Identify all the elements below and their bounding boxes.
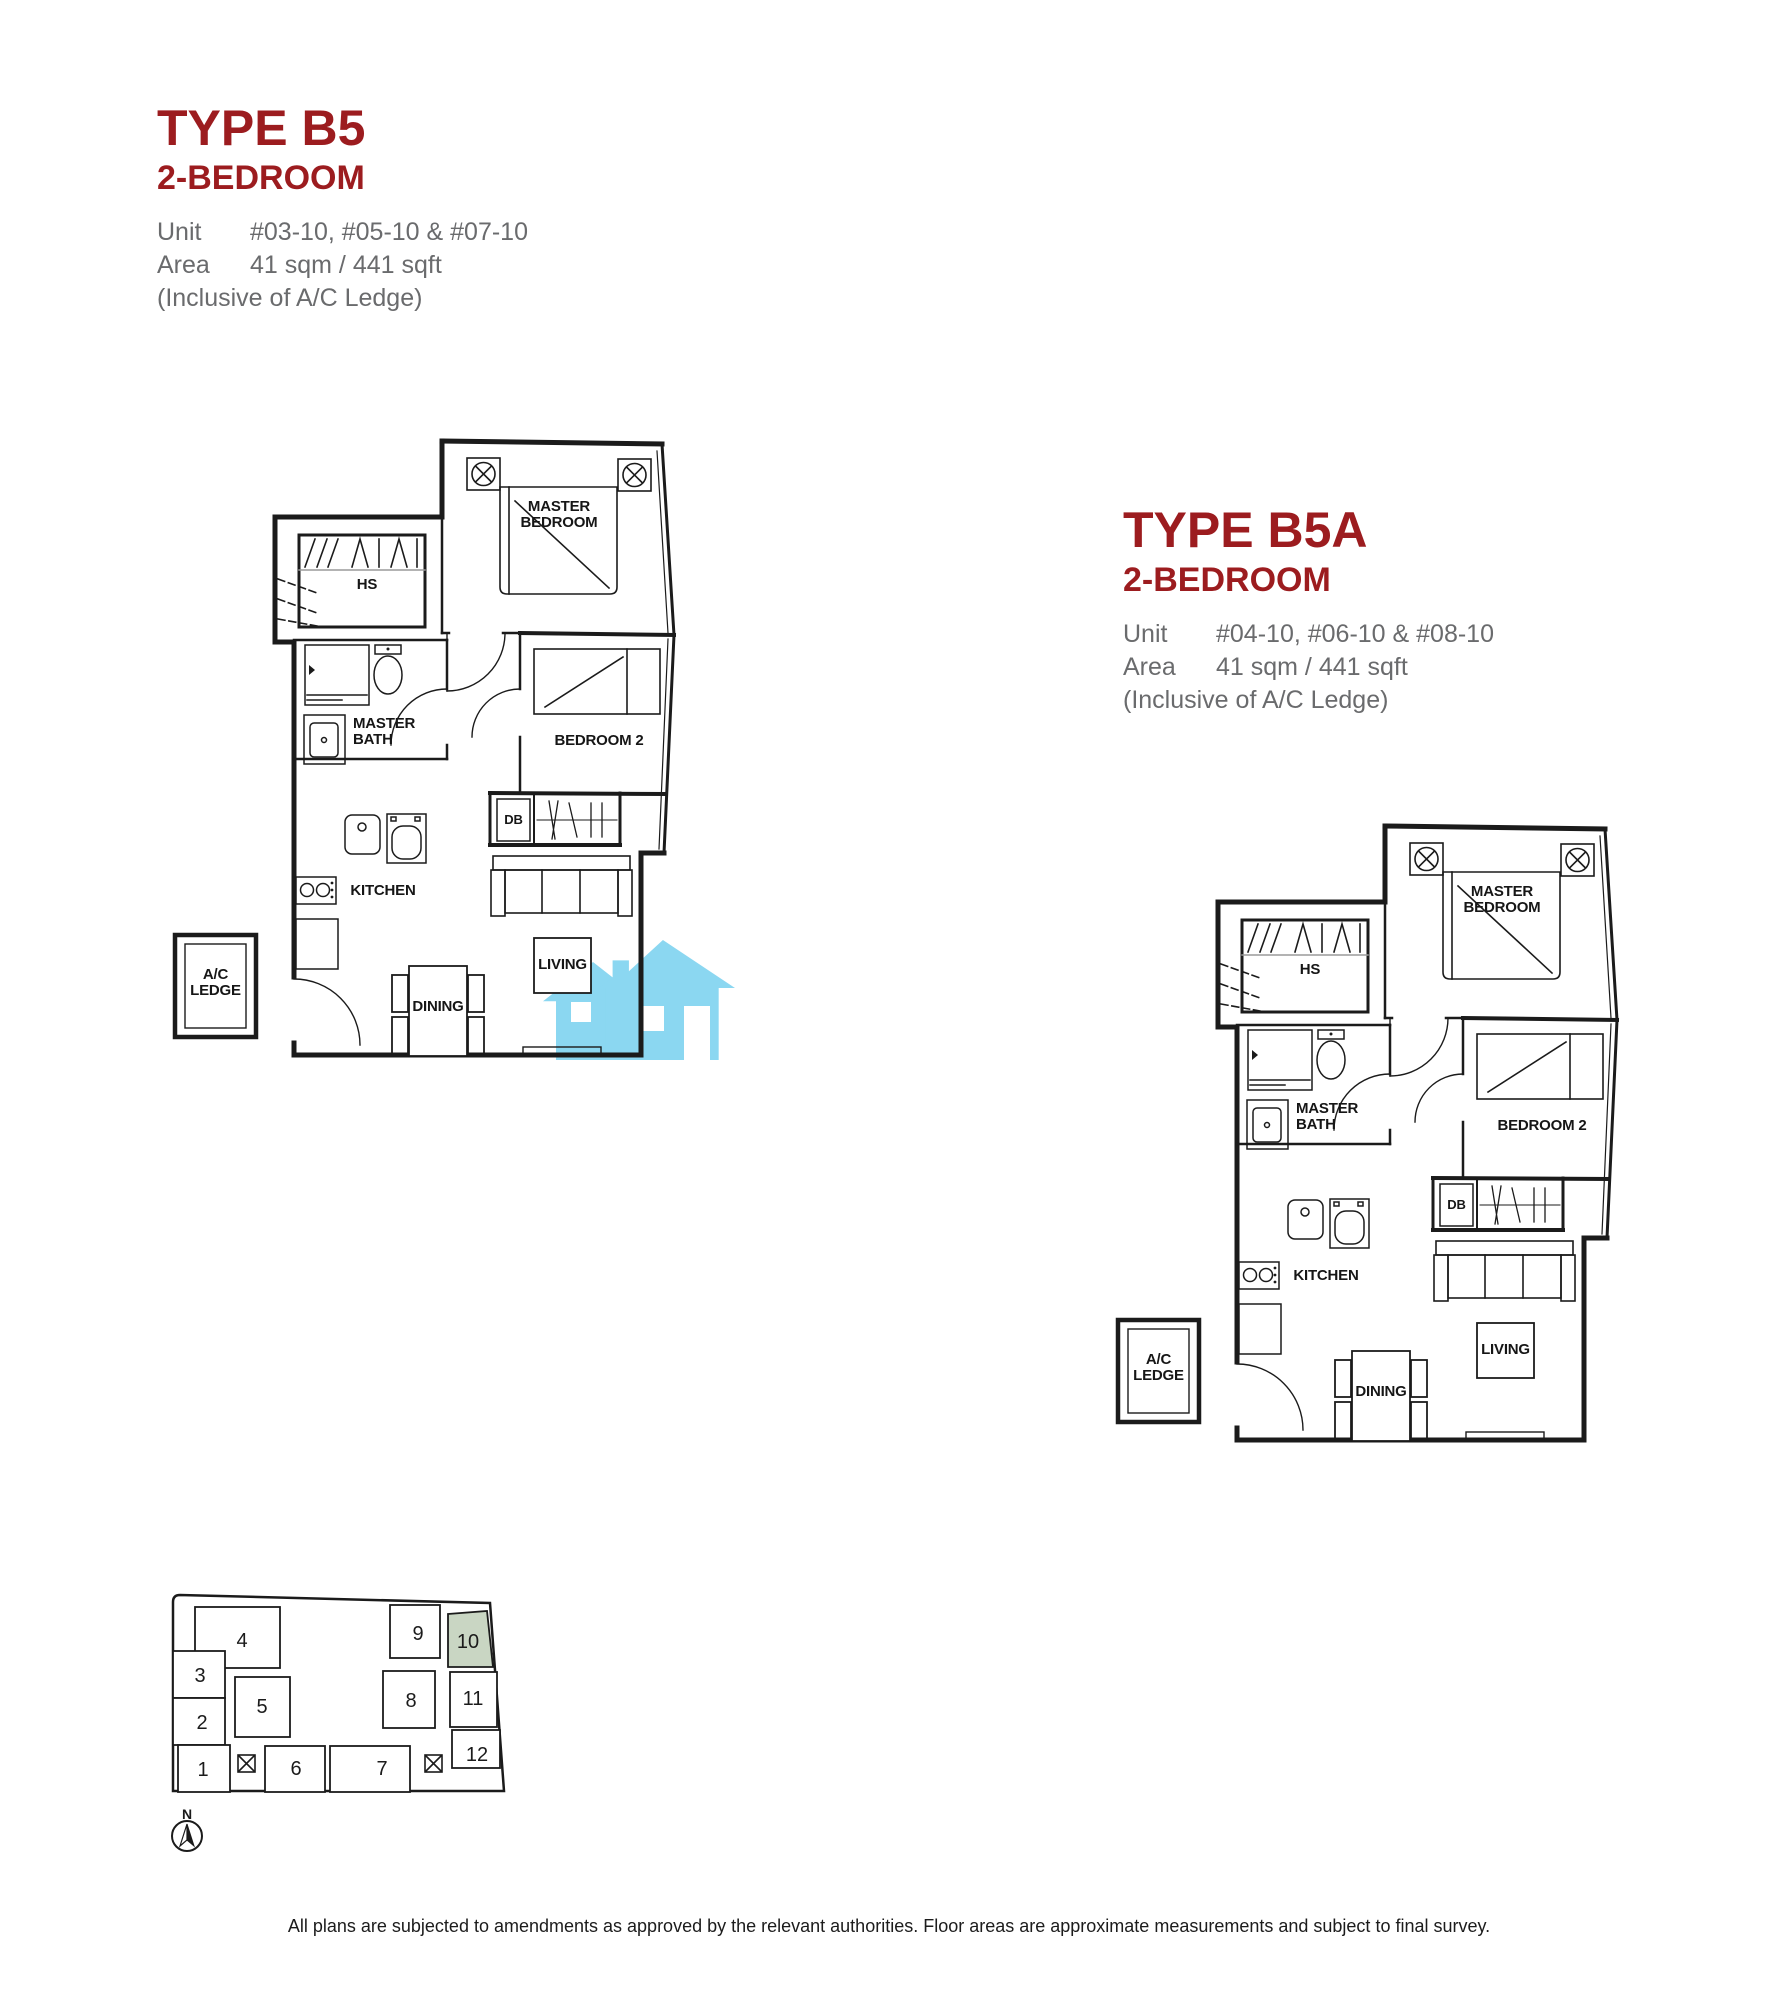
label-master-bath: MASTER BATH [353,716,433,748]
label-dining: DINING [1351,1384,1411,1400]
site-unit-7 [330,1746,410,1792]
label-hs: HS [342,577,392,593]
unit-number-7: 7 [376,1758,387,1780]
unit-number-9: 9 [412,1623,423,1645]
lift-icon [238,1755,255,1772]
area-row: Area 41 sqm / 441 sqft [1123,651,1494,684]
type-b5-title: TYPE B5 [157,103,528,154]
unit-label: Unit [1123,618,1216,651]
unit-row: Unit #03-10, #05-10 & #07-10 [157,216,528,249]
unit-number-4: 4 [236,1630,247,1652]
lift-icon [425,1755,442,1772]
unit-label: Unit [157,216,250,249]
unit-value: #03-10, #05-10 & #07-10 [250,216,528,249]
ac-ledge-note: (Inclusive of A/C Ledge) [1123,684,1494,717]
label-living: LIVING [534,957,591,973]
label-bedroom2: BEDROOM 2 [1482,1118,1602,1134]
type-b5a-info: Unit #04-10, #06-10 & #08-10 Area 41 sqm… [1123,618,1494,717]
label-master-bedroom: MASTER BEDROOM [497,499,621,531]
unit-number-6: 6 [290,1758,301,1780]
area-value: 41 sqm / 441 sqft [250,249,442,282]
disclaimer-text: All plans are subjected to amendments as… [0,1916,1778,1937]
label-bedroom2: BEDROOM 2 [539,733,659,749]
area-label: Area [1123,651,1216,684]
type-b5a-title: TYPE B5A [1123,505,1494,556]
label-dining: DINING [408,999,468,1015]
floorplan-b5: MASTER BEDROOM HS MASTER BATH BEDROOM 2 … [157,427,677,1087]
label-ac-ledge: A/C LEDGE [1118,1352,1199,1384]
north-compass-icon: N [172,1806,202,1851]
ac-ledge-note: (Inclusive of A/C Ledge) [157,282,528,315]
area-row: Area 41 sqm / 441 sqft [157,249,528,282]
label-master-bath: MASTER BATH [1296,1101,1376,1133]
type-b5a-subtitle: 2-BEDROOM [1123,563,1494,597]
unit-number-12: 12 [466,1744,488,1766]
unit-number-1: 1 [197,1759,208,1781]
type-b5-header: TYPE B5 2-BEDROOM Unit #03-10, #05-10 & … [157,103,528,315]
unit-row: Unit #04-10, #06-10 & #08-10 [1123,618,1494,651]
area-label: Area [157,249,250,282]
site-key-plan: 1 2 3 4 5 6 7 8 9 10 11 12 N [160,1583,516,1880]
type-b5-info: Unit #03-10, #05-10 & #07-10 Area 41 sqm… [157,216,528,315]
type-b5a-header: TYPE B5A 2-BEDROOM Unit #04-10, #06-10 &… [1123,505,1494,717]
unit-number-5: 5 [256,1696,267,1718]
unit-number-11: 11 [463,1688,484,1710]
unit-number-10: 10 [457,1631,479,1653]
north-label: N [182,1806,192,1822]
label-hs: HS [1285,962,1335,978]
label-db: DB [1440,1198,1473,1212]
watermark-door-icon [684,1006,710,1060]
label-living: LIVING [1477,1342,1534,1358]
unit-number-2: 2 [196,1712,207,1734]
unit-number-8: 8 [405,1690,416,1712]
unit-value: #04-10, #06-10 & #08-10 [1216,618,1494,651]
floorplan-b5a: MASTER BEDROOM HS MASTER BATH BEDROOM 2 … [1100,812,1620,1472]
label-ac-ledge: A/C LEDGE [175,967,256,999]
unit-number-3: 3 [194,1665,205,1687]
type-b5-subtitle: 2-BEDROOM [157,161,528,195]
label-kitchen: KITCHEN [1286,1268,1366,1284]
label-db: DB [497,813,530,827]
area-value: 41 sqm / 441 sqft [1216,651,1408,684]
label-master-bedroom: MASTER BEDROOM [1440,884,1564,916]
label-kitchen: KITCHEN [343,883,423,899]
floorplan-brochure-page: { "colors": { "accent_red": "#9c1c1f", "… [0,0,1778,2000]
